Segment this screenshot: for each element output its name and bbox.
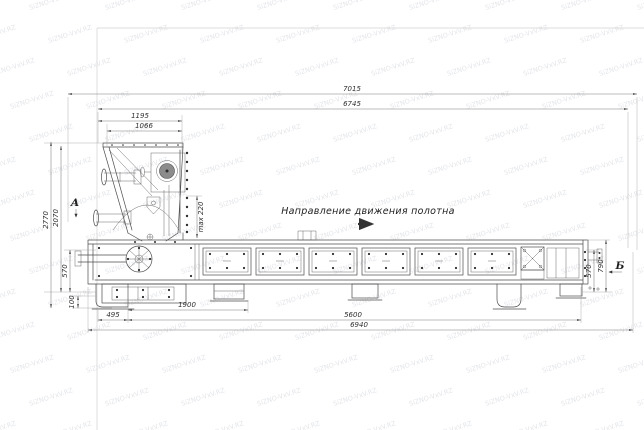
watermark-text: SiZNO-VxV.RZ — [579, 23, 625, 45]
watermark-text: SiZNO-VxV.RZ — [142, 320, 188, 342]
watermark-text: SiZNO-VxV.RZ — [0, 287, 17, 309]
watermark-text: SiZNO-VxV.RZ — [484, 122, 530, 144]
watermark-text: SiZNO-VxV.RZ — [332, 0, 378, 12]
watermark-text: SiZNO-VxV.RZ — [142, 188, 188, 210]
watermark-text: SiZNO-VxV.RZ — [256, 0, 302, 12]
watermark-text: SiZNO-VxV.RZ — [408, 386, 454, 408]
dim-hopper-outer: 1195 — [131, 112, 149, 120]
watermark-text: SiZNO-VxV.RZ — [0, 23, 17, 45]
watermark-text: SiZNO-VxV.RZ — [66, 56, 112, 78]
watermark-text: SiZNO-VxV.RZ — [28, 0, 74, 12]
view-label-a: А — [70, 197, 80, 209]
watermark-text: SiZNO-VxV.RZ — [0, 155, 17, 177]
watermark-text: SiZNO-VxV.RZ — [332, 122, 378, 144]
watermark-text: SiZNO-VxV.RZ — [313, 353, 359, 375]
watermark-text: SiZNO-VxV.RZ — [427, 23, 473, 45]
watermark-text: SiZNO-VxV.RZ — [199, 287, 245, 309]
watermark-text: SiZNO-VxV.RZ — [427, 155, 473, 177]
watermark-text: SiZNO-VxV.RZ — [47, 23, 93, 45]
watermark-text: SiZNO-VxV.RZ — [123, 419, 169, 430]
dim-height-total: 2770 — [42, 211, 50, 229]
dim-offset-left: 495 — [106, 311, 120, 319]
watermark-text: SiZNO-VxV.RZ — [332, 386, 378, 408]
dim-body-length: 5600 — [344, 311, 362, 319]
watermark-text: SiZNO-VxV.RZ — [142, 56, 188, 78]
watermark-text: SiZNO-VxV.RZ — [66, 320, 112, 342]
watermark-text: SiZNO-VxV.RZ — [180, 386, 226, 408]
watermark-text: SiZNO-VxV.RZ — [85, 89, 131, 111]
watermark-text: SiZNO-VxV.RZ — [218, 56, 264, 78]
dim-frame-height-left: 570 — [61, 264, 69, 278]
watermark-text: SiZNO-VxV.RZ — [617, 89, 644, 111]
watermark-text: SiZNO-VxV.RZ — [636, 254, 644, 276]
dim-head-length: 1900 — [178, 301, 196, 309]
watermark-text: SiZNO-VxV.RZ — [351, 155, 397, 177]
belt-direction-label: Направление движения полотна — [281, 206, 455, 217]
dim-height-hopper: 2070 — [52, 209, 60, 227]
watermark-text: SiZNO-VxV.RZ — [389, 221, 435, 243]
watermark-text: SiZNO-VxV.RZ — [0, 56, 36, 78]
watermark-text: SiZNO-VxV.RZ — [560, 386, 606, 408]
watermark-text: SiZNO-VxV.RZ — [408, 0, 454, 12]
watermark-text: SiZNO-VxV.RZ — [275, 287, 321, 309]
dim-max-gap: max 220 — [197, 201, 205, 232]
watermark-text: SiZNO-VxV.RZ — [427, 287, 473, 309]
watermark-text: SiZNO-VxV.RZ — [484, 0, 530, 12]
watermark-text: SiZNO-VxV.RZ — [389, 353, 435, 375]
watermark-text: SiZNO-VxV.RZ — [484, 254, 530, 276]
drawing-canvas: SiZNO-VxV.RZSiZNO-VxV.RZSiZNO-VxV.RZSiZN… — [0, 0, 644, 430]
watermark-text: SiZNO-VxV.RZ — [522, 56, 568, 78]
watermark-text: SiZNO-VxV.RZ — [446, 56, 492, 78]
watermark-text: SiZNO-VxV.RZ — [47, 419, 93, 430]
watermark-text: SiZNO-VxV.RZ — [275, 155, 321, 177]
watermark-text: SiZNO-VxV.RZ — [294, 56, 340, 78]
watermark-text: SiZNO-VxV.RZ — [522, 320, 568, 342]
watermark-text: SiZNO-VxV.RZ — [465, 89, 511, 111]
watermark-text: SiZNO-VxV.RZ — [636, 122, 644, 144]
watermark-text: SiZNO-VxV.RZ — [503, 287, 549, 309]
watermark-text: SiZNO-VxV.RZ — [332, 254, 378, 276]
dim-base-length: 6940 — [350, 321, 368, 329]
watermark-text: SiZNO-VxV.RZ — [180, 122, 226, 144]
watermark-text: SiZNO-VxV.RZ — [0, 320, 36, 342]
watermark-text: SiZNO-VxV.RZ — [237, 221, 283, 243]
watermark-text: SiZNO-VxV.RZ — [503, 155, 549, 177]
watermark-text: SiZNO-VxV.RZ — [617, 353, 644, 375]
watermark-text: SiZNO-VxV.RZ — [237, 353, 283, 375]
watermark-text: SiZNO-VxV.RZ — [389, 89, 435, 111]
watermark-text: SiZNO-VxV.RZ — [503, 23, 549, 45]
watermark-text: SiZNO-VxV.RZ — [180, 0, 226, 12]
watermark-text: SiZNO-VxV.RZ — [199, 23, 245, 45]
watermark-text: SiZNO-VxV.RZ — [275, 23, 321, 45]
watermark-text: SiZNO-VxV.RZ — [598, 320, 644, 342]
watermark-text: SiZNO-VxV.RZ — [541, 353, 587, 375]
watermark-text: SiZNO-VxV.RZ — [275, 419, 321, 430]
watermark-text: SiZNO-VxV.RZ — [123, 23, 169, 45]
watermark-text: SiZNO-VxV.RZ — [161, 89, 207, 111]
watermark-text: SiZNO-VxV.RZ — [503, 419, 549, 430]
watermark-text: SiZNO-VxV.RZ — [85, 221, 131, 243]
watermark-text: SiZNO-VxV.RZ — [636, 0, 644, 12]
watermark-text: SiZNO-VxV.RZ — [484, 386, 530, 408]
watermark-text: SiZNO-VxV.RZ — [351, 23, 397, 45]
view-label-b: Б — [615, 260, 625, 272]
watermark-text: SiZNO-VxV.RZ — [28, 122, 74, 144]
watermark-text: SiZNO-VxV.RZ — [370, 320, 416, 342]
engineering-drawing: SiZNO-VxV.RZSiZNO-VxV.RZSiZNO-VxV.RZSiZN… — [0, 0, 644, 430]
watermark-text: SiZNO-VxV.RZ — [446, 320, 492, 342]
watermark-text: SiZNO-VxV.RZ — [427, 419, 473, 430]
watermark-text: SiZNO-VxV.RZ — [541, 221, 587, 243]
watermark-text: SiZNO-VxV.RZ — [0, 419, 17, 430]
watermark-text: SiZNO-VxV.RZ — [28, 386, 74, 408]
dim-total-length: 7015 — [343, 85, 361, 93]
watermark-text: SiZNO-VxV.RZ — [560, 122, 606, 144]
watermark-text: SiZNO-VxV.RZ — [256, 122, 302, 144]
watermark-text: SiZNO-VxV.RZ — [522, 188, 568, 210]
watermark-text: SiZNO-VxV.RZ — [199, 155, 245, 177]
watermark-text: SiZNO-VxV.RZ — [370, 56, 416, 78]
watermark-text: SiZNO-VxV.RZ — [579, 155, 625, 177]
watermark-text: SiZNO-VxV.RZ — [104, 386, 150, 408]
watermark-text: SiZNO-VxV.RZ — [9, 89, 55, 111]
watermark-text: SiZNO-VxV.RZ — [598, 56, 644, 78]
watermark-text: SiZNO-VxV.RZ — [104, 0, 150, 12]
watermark-text: SiZNO-VxV.RZ — [636, 386, 644, 408]
dim-hopper-inner: 1066 — [135, 122, 153, 130]
watermark-text: SiZNO-VxV.RZ — [0, 188, 36, 210]
dim-foot-height: 100 — [68, 295, 76, 309]
watermark-text: SiZNO-VxV.RZ — [351, 419, 397, 430]
watermark-text: SiZNO-VxV.RZ — [617, 221, 644, 243]
watermark-text: SiZNO-VxV.RZ — [313, 221, 359, 243]
watermark-text: SiZNO-VxV.RZ — [408, 122, 454, 144]
watermark-text: SiZNO-VxV.RZ — [123, 287, 169, 309]
watermark-text: SiZNO-VxV.RZ — [465, 221, 511, 243]
watermark-text: SiZNO-VxV.RZ — [541, 89, 587, 111]
watermark-text: SiZNO-VxV.RZ — [47, 155, 93, 177]
watermark-text: SiZNO-VxV.RZ — [161, 353, 207, 375]
watermark-text: SiZNO-VxV.RZ — [579, 419, 625, 430]
watermark-text: SiZNO-VxV.RZ — [237, 89, 283, 111]
watermark-text: SiZNO-VxV.RZ — [85, 353, 131, 375]
watermark-text: SiZNO-VxV.RZ — [256, 254, 302, 276]
watermark-text: SiZNO-VxV.RZ — [560, 0, 606, 12]
dim-frame-height-right: 570 — [585, 264, 593, 278]
watermark-text: SiZNO-VxV.RZ — [256, 386, 302, 408]
watermark-text: SiZNO-VxV.RZ — [9, 353, 55, 375]
watermark-text: SiZNO-VxV.RZ — [218, 188, 264, 210]
dim-tail-height: 790 — [597, 259, 605, 273]
watermark-text: SiZNO-VxV.RZ — [294, 320, 340, 342]
dim-frame-length: 6745 — [343, 100, 361, 108]
watermark-text: SiZNO-VxV.RZ — [218, 320, 264, 342]
watermark-text: SiZNO-VxV.RZ — [465, 353, 511, 375]
watermark-text: SiZNO-VxV.RZ — [199, 419, 245, 430]
